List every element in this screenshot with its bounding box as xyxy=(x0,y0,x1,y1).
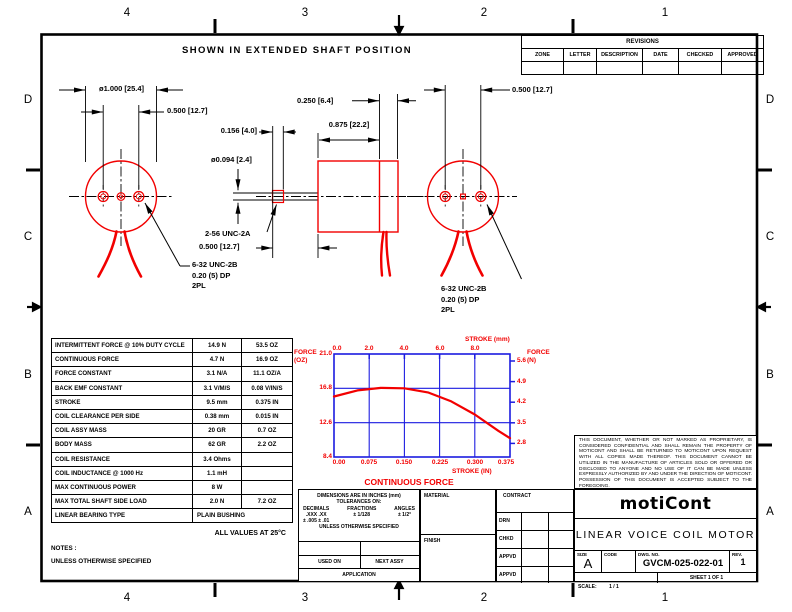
chart-top-tick: 0.0 xyxy=(327,345,347,352)
left-view-wires xyxy=(99,232,142,277)
spec-metric: 20 GR xyxy=(193,424,242,438)
approval-row: CHKD xyxy=(497,530,573,548)
dwg-no-label: DWG. NO. xyxy=(636,551,730,557)
chart-bottom-tick: 0.300 xyxy=(463,459,487,466)
spec-metric: 3.4 Ohms xyxy=(193,452,242,466)
finish-cell: FINISH xyxy=(421,534,495,582)
used-on-row: USED ON NEXT ASSY xyxy=(299,555,419,568)
spec-label: MAX CONTINUOUS POWER xyxy=(52,480,193,494)
spec-row: CONTINUOUS FORCE4.7 N16.9 OZ xyxy=(52,353,293,367)
tap-note-line: 0.20 (5) DP xyxy=(192,271,237,282)
spec-label: INTERMITTENT FORCE @ 10% DUTY CYCLE xyxy=(52,339,193,353)
left-end-view xyxy=(86,161,157,277)
contract-block: CONTRACT DRN CHKD APPVD APPVD xyxy=(496,489,574,582)
tol-columns: DECIMALS .XXX .XX ± .005 ± .01 FRACTIONS… xyxy=(299,505,419,524)
zone-row-label: C xyxy=(762,231,778,243)
rev-col-approved: APPROVED xyxy=(722,49,764,62)
chart-top-tick: 2.0 xyxy=(359,345,379,352)
zone-col-label: 2 xyxy=(476,7,492,19)
spec-metric: 8 W xyxy=(193,480,242,494)
chart-bottom-tick: 0.225 xyxy=(428,459,452,466)
chart-left-tick: 12.6 xyxy=(311,419,332,426)
code-cell: CODE xyxy=(601,551,636,572)
spec-row: BODY MASS62 GR2.2 OZ xyxy=(52,438,293,452)
zone-row-label: C xyxy=(20,231,36,243)
zone-row-label: D xyxy=(762,94,778,106)
scale-text: SCALE: 1 / 1 xyxy=(575,575,657,593)
spec-metric: 1.1 mH xyxy=(193,466,242,480)
note-shaft-thread: 2-56 UNC-2A xyxy=(205,229,250,238)
chart-bottom-tick: 0.150 xyxy=(392,459,416,466)
zone-row-label: B xyxy=(20,369,36,381)
notes-label: NOTES : xyxy=(51,545,77,552)
chart-top-tick: 4.0 xyxy=(394,345,414,352)
chart-bottom-tick: 0.00 xyxy=(327,459,351,466)
spec-imperial: 7.2 OZ xyxy=(242,495,293,509)
used-on-label: USED ON xyxy=(299,559,360,565)
application-label: APPLICATION xyxy=(299,572,419,578)
force-stroke-chart xyxy=(334,354,515,457)
chart-bottom-tick: 0.075 xyxy=(357,459,381,466)
spec-row: COIL ASSY MASS20 GR0.7 OZ xyxy=(52,424,293,438)
spec-imperial: 11.1 OZ/A xyxy=(242,367,293,381)
tap-note-line: 0.20 (5) DP xyxy=(441,295,486,306)
spec-imperial: 0.7 OZ xyxy=(242,424,293,438)
company-logo: motiCont xyxy=(575,494,756,514)
revisions-empty-row xyxy=(522,62,764,75)
spec-row: COIL RESISTANCE3.4 Ohms xyxy=(52,452,293,466)
zone-col-label: 3 xyxy=(297,7,313,19)
rev-col-letter: LETTER xyxy=(564,49,597,62)
material-label: MATERIAL xyxy=(421,490,495,499)
spec-label: COIL INDUCTANCE @ 1000 Hz xyxy=(52,466,193,480)
spec-label: MAX TOTAL SHAFT SIDE LOAD xyxy=(52,495,193,509)
spec-imperial: 16.9 OZ xyxy=(242,353,293,367)
tolerance-block: DIMENSIONS ARE IN INCHES (mm) TOLERANCES… xyxy=(298,489,420,582)
appvd-label: APPVD xyxy=(497,549,573,560)
proprietary-notice: THIS DOCUMENT, WHETHER OR NOT MARKED AS … xyxy=(574,435,757,489)
spec-label: COIL CLEARANCE PER SIDE xyxy=(52,409,193,423)
dim-hole-spacing-left: 0.500 [12.7] xyxy=(167,106,207,115)
spec-row: MAX TOTAL SHAFT SIDE LOAD2.0 N7.2 OZ xyxy=(52,495,293,509)
material-block: MATERIAL FINISH xyxy=(420,489,496,582)
chart-top-tick: 8.0 xyxy=(465,345,485,352)
spec-imperial: 53.5 OZ xyxy=(242,339,293,353)
spec-label: FORCE CONSTANT xyxy=(52,367,193,381)
spec-label: COIL ASSY MASS xyxy=(52,424,193,438)
dwg-no-cell: DWG. NO. GVCM-025-022-01 xyxy=(635,551,730,572)
spec-imperial: 0.015 IN xyxy=(242,409,293,423)
spec-metric: 3.1 V/M/S xyxy=(193,381,242,395)
drawing-title-cell: LINEAR VOICE COIL MOTOR xyxy=(575,518,756,550)
tol-empty-cells xyxy=(299,541,419,555)
proprietary-text: THIS DOCUMENT, WHETHER OR NOT MARKED AS … xyxy=(575,436,756,491)
approval-row: APPVD xyxy=(497,566,573,583)
zone-row-label: A xyxy=(762,506,778,518)
zone-col-label: 1 xyxy=(657,7,673,19)
code-label: CODE xyxy=(602,551,636,557)
spec-row: LINEAR BEARING TYPEPLAIN BUSHING xyxy=(52,509,293,523)
drawing-sheet: 4 3 2 1 4 3 2 1 D C B A D C B A SHOWN IN… xyxy=(0,0,792,612)
spec-metric: 3.1 N/A xyxy=(193,367,242,381)
revisions-title: REVISIONS xyxy=(522,36,764,49)
spec-label: LINEAR BEARING TYPE xyxy=(52,509,193,523)
size-value: A xyxy=(575,556,601,571)
note-tap-right: 6-32 UNC-2B 0.20 (5) DP 2PL xyxy=(441,284,486,316)
tap-note-line: 6-32 UNC-2B xyxy=(441,284,486,295)
chart-bottom-tick: 0.375 xyxy=(494,459,518,466)
spec-imperial: 2.2 OZ xyxy=(242,438,293,452)
spec-row: BACK EMF CONSTANT3.1 V/M/S0.08 V/IN/S xyxy=(52,381,293,395)
sheet-view-title: SHOWN IN EXTENDED SHAFT POSITION xyxy=(177,45,417,56)
chart-right-axis-label: FORCE (N) xyxy=(527,349,550,364)
rev-col-checked: CHECKED xyxy=(679,49,722,62)
chart-right-tick: 3.5 xyxy=(517,419,526,426)
tol-fractions-val: ± 1/128 xyxy=(347,512,376,518)
rev-col-zone: ZONE xyxy=(522,49,564,62)
spec-imperial xyxy=(242,466,293,480)
drawing-title: LINEAR VOICE COIL MOTOR xyxy=(575,529,756,541)
spec-imperial: 0.375 IN xyxy=(242,395,293,409)
tol-angles-val: ± 1/2° xyxy=(394,512,415,518)
dim-shaft-diameter: ø0.094 [2.4] xyxy=(211,155,252,164)
spec-row: STROKE9.5 mm0.375 IN xyxy=(52,395,293,409)
spec-row: COIL INDUCTANCE @ 1000 Hz1.1 mH xyxy=(52,466,293,480)
chart-top-tick: 6.0 xyxy=(430,345,450,352)
dwg-no-value: GVCM-025-022-01 xyxy=(636,558,730,569)
rev-cell: REV. 1 xyxy=(729,551,756,572)
spec-table: INTERMITTENT FORCE @ 10% DUTY CYCLE14.9 … xyxy=(51,338,293,523)
spec-imperial xyxy=(242,480,293,494)
chart-title: CONTINUOUS FORCE xyxy=(344,477,474,487)
chkd-label: CHKD xyxy=(497,531,573,542)
chart-right-tick: 5.6 xyxy=(517,357,526,364)
contract-label: CONTRACT xyxy=(497,490,573,499)
scale-sheet-row: SCALE: 1 / 1 SHEET 1 OF 1 xyxy=(575,572,756,583)
notes-text: UNLESS OTHERWISE SPECIFIED xyxy=(51,558,151,565)
rev-value: 1 xyxy=(730,557,756,567)
rev-col-date: DATE xyxy=(643,49,679,62)
chart-right-tick: 4.9 xyxy=(517,378,526,385)
extension-lines xyxy=(86,85,481,258)
chart-right-tick: 2.8 xyxy=(517,439,526,446)
zone-col-label: 4 xyxy=(119,592,135,604)
spec-row: COIL CLEARANCE PER SIDE0.38 mm0.015 IN xyxy=(52,409,293,423)
spec-label: BODY MASS xyxy=(52,438,193,452)
dim-shaft-extension: 0.500 [12.7] xyxy=(199,242,239,251)
appvd-label: APPVD xyxy=(497,567,573,578)
chart-left-tick: 16.8 xyxy=(311,384,332,391)
zone-col-label: 1 xyxy=(657,592,673,604)
spec-metric: 0.38 mm xyxy=(193,409,242,423)
dim-body-length: 0.875 [22.2] xyxy=(318,120,380,129)
spec-metric: 4.7 N xyxy=(193,353,242,367)
dim-mount-circle-dia: ø1.000 [25.4] xyxy=(86,84,157,93)
tap-note-line: 6-32 UNC-2B xyxy=(192,260,237,271)
spec-metric: 9.5 mm xyxy=(193,395,242,409)
zone-col-label: 3 xyxy=(297,592,313,604)
next-assy-label: NEXT ASSY xyxy=(360,559,419,565)
spec-label: COIL RESISTANCE xyxy=(52,452,193,466)
spec-imperial xyxy=(242,452,293,466)
right-view-wires xyxy=(442,232,483,276)
rev-col-description: DESCRIPTION xyxy=(597,49,643,62)
chart-top-axis-label: STROKE (mm) xyxy=(465,336,510,343)
right-end-view xyxy=(428,161,499,276)
force-curve xyxy=(334,388,510,438)
dim-cap-length: 0.250 [6.4] xyxy=(297,96,333,105)
side-view xyxy=(233,161,398,276)
spec-label: CONTINUOUS FORCE xyxy=(52,353,193,367)
chart-gridlines xyxy=(334,354,510,457)
spec-row: MAX CONTINUOUS POWER8 W xyxy=(52,480,293,494)
chart-right-tick: 4.2 xyxy=(517,398,526,405)
zone-col-label: 2 xyxy=(476,592,492,604)
dim-hole-spacing-right: 0.500 [12.7] xyxy=(512,85,552,94)
zone-row-label: D xyxy=(20,94,36,106)
tap-note-line: 2PL xyxy=(441,305,486,316)
drn-label: DRN xyxy=(497,513,573,524)
revisions-table: REVISIONS ZONE LETTER DESCRIPTION DATE C… xyxy=(521,35,764,75)
spec-imperial: 0.08 V/IN/S xyxy=(242,381,293,395)
revisions-header-row: ZONE LETTER DESCRIPTION DATE CHECKED APP… xyxy=(522,49,764,62)
tol-line3: UNLESS OTHERWISE SPECIFIED xyxy=(299,524,419,530)
spec-metric: 62 GR xyxy=(193,438,242,452)
revisions-title-row: REVISIONS xyxy=(522,36,764,49)
tap-note-line: 2PL xyxy=(192,281,237,292)
approval-row: DRN xyxy=(497,512,573,530)
zone-row-label: B xyxy=(762,369,778,381)
spec-footnote: ALL VALUES AT 25°C xyxy=(150,530,286,537)
title-block: motiCont LINEAR VOICE COIL MOTOR SIZE A … xyxy=(574,489,757,582)
spec-row: INTERMITTENT FORCE @ 10% DUTY CYCLE14.9 … xyxy=(52,339,293,353)
application-row: APPLICATION xyxy=(299,568,419,582)
size-code-dwg-row: SIZE A CODE DWG. NO. GVCM-025-022-01 REV… xyxy=(575,550,756,572)
dim-thread-length: 0.156 [4.0] xyxy=(194,126,257,135)
size-cell: SIZE A xyxy=(575,551,601,572)
zone-row-label: A xyxy=(20,506,36,518)
side-view-wires xyxy=(381,232,390,276)
note-tap-left: 6-32 UNC-2B 0.20 (5) DP 2PL xyxy=(192,260,237,292)
zone-col-label: 4 xyxy=(119,7,135,19)
sheet-text: SHEET 1 OF 1 xyxy=(657,575,756,581)
spec-metric: 14.9 N xyxy=(193,339,242,353)
spec-metric: 2.0 N xyxy=(193,495,242,509)
spec-metric: PLAIN BUSHING xyxy=(193,509,293,523)
spec-label: STROKE xyxy=(52,395,193,409)
chart-bottom-axis-label: STROKE (IN) xyxy=(452,468,492,475)
spec-label: BACK EMF CONSTANT xyxy=(52,381,193,395)
spec-row: FORCE CONSTANT3.1 N/A11.1 OZ/A xyxy=(52,367,293,381)
approval-row: APPVD xyxy=(497,548,573,566)
finish-label: FINISH xyxy=(421,535,495,544)
